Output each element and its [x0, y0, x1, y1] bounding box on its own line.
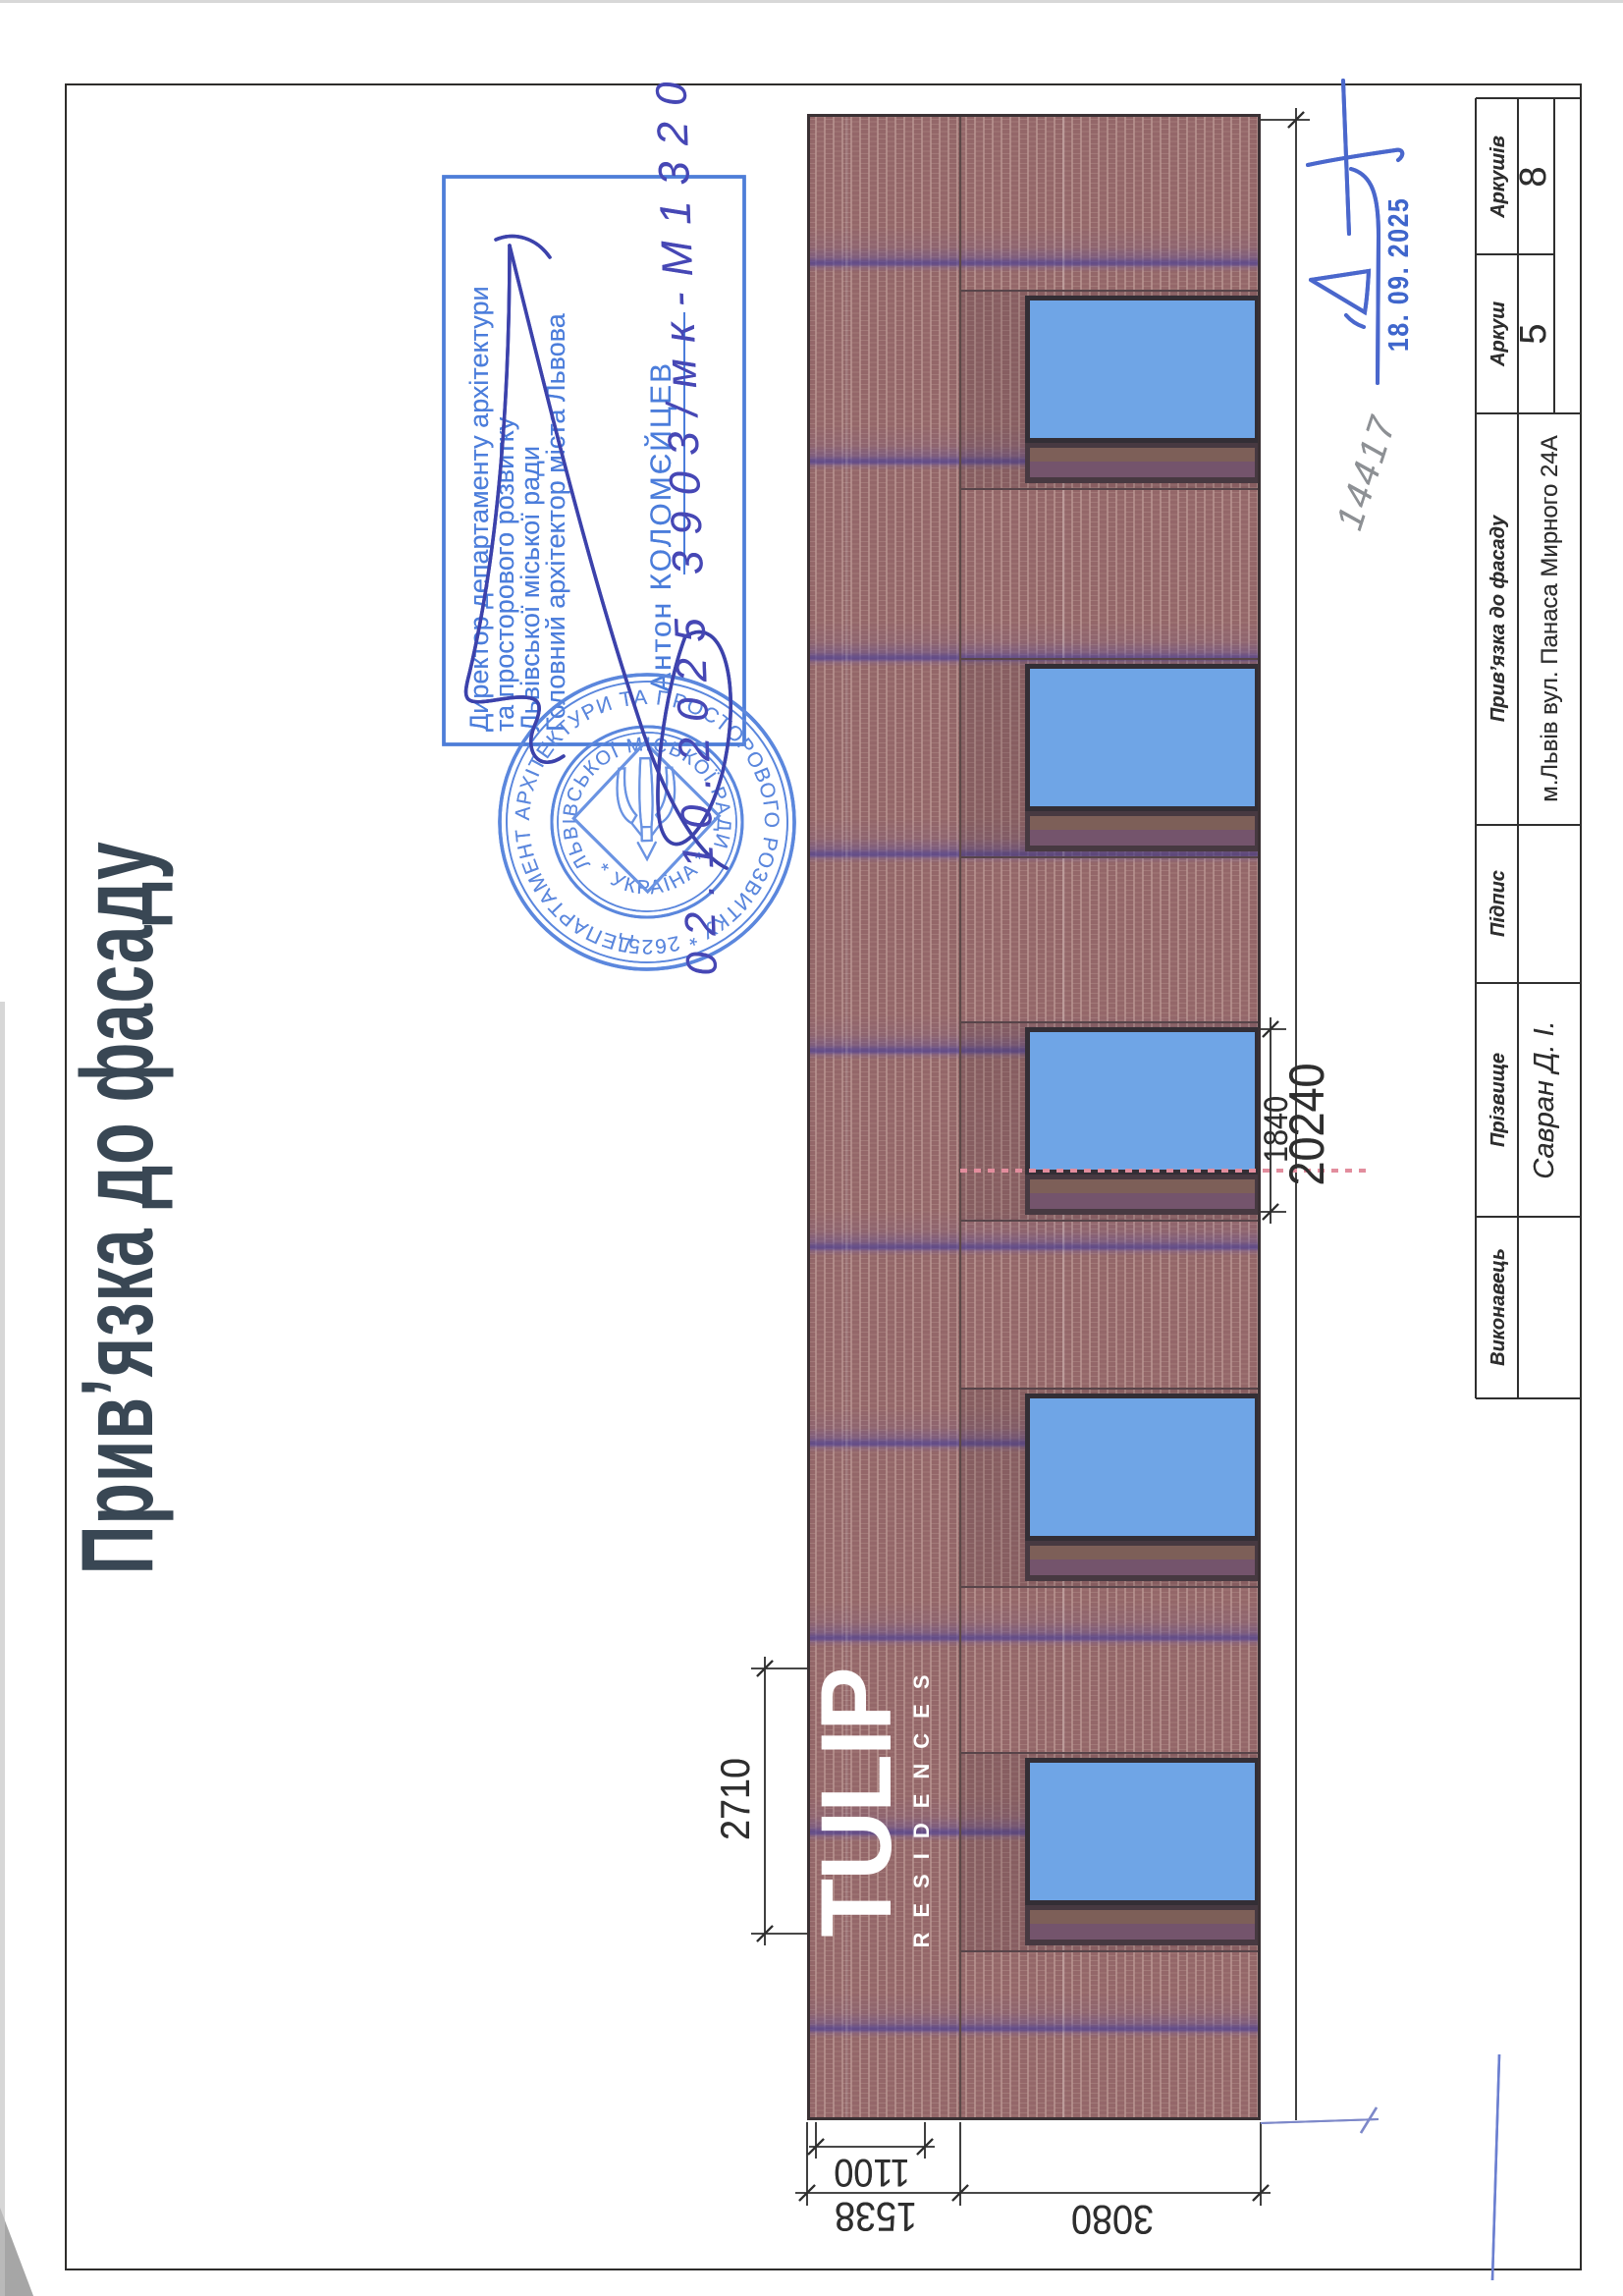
svg-text:14417: 14417 [1329, 410, 1405, 535]
svg-text:Виконавець: Виконавець [1488, 1248, 1509, 1366]
svg-text:м.Львів вул. Панаса Мирного 24: м.Львів вул. Панаса Мирного 24А [1537, 435, 1563, 801]
svg-text:5: 5 [1513, 323, 1554, 344]
svg-text:Аркушів: Аркушів [1488, 136, 1509, 219]
svg-text:1538: 1538 [835, 2194, 917, 2239]
svg-text:Савран Д. І.: Савран Д. І. [1529, 1020, 1560, 1178]
svg-text:Аркуш: Аркуш [1488, 301, 1509, 367]
svg-text:Головний архітектор міста Льво: Головний архітектор міста Львова [541, 312, 570, 732]
svg-text:Прив’язка до фасаду: Прив’язка до фасаду [1488, 515, 1509, 722]
svg-text:18. 09. 2025: 18. 09. 2025 [1382, 197, 1414, 352]
svg-text:Підпис: Підпис [1488, 870, 1509, 937]
svg-text:Прізвище: Прізвище [1488, 1053, 1509, 1147]
svg-text:20240: 20240 [1280, 1063, 1335, 1185]
svg-text:3080: 3080 [1071, 2197, 1154, 2242]
svg-text:2710: 2710 [713, 1758, 758, 1840]
svg-text:1100: 1100 [834, 2151, 909, 2194]
svg-text:8: 8 [1513, 166, 1554, 187]
